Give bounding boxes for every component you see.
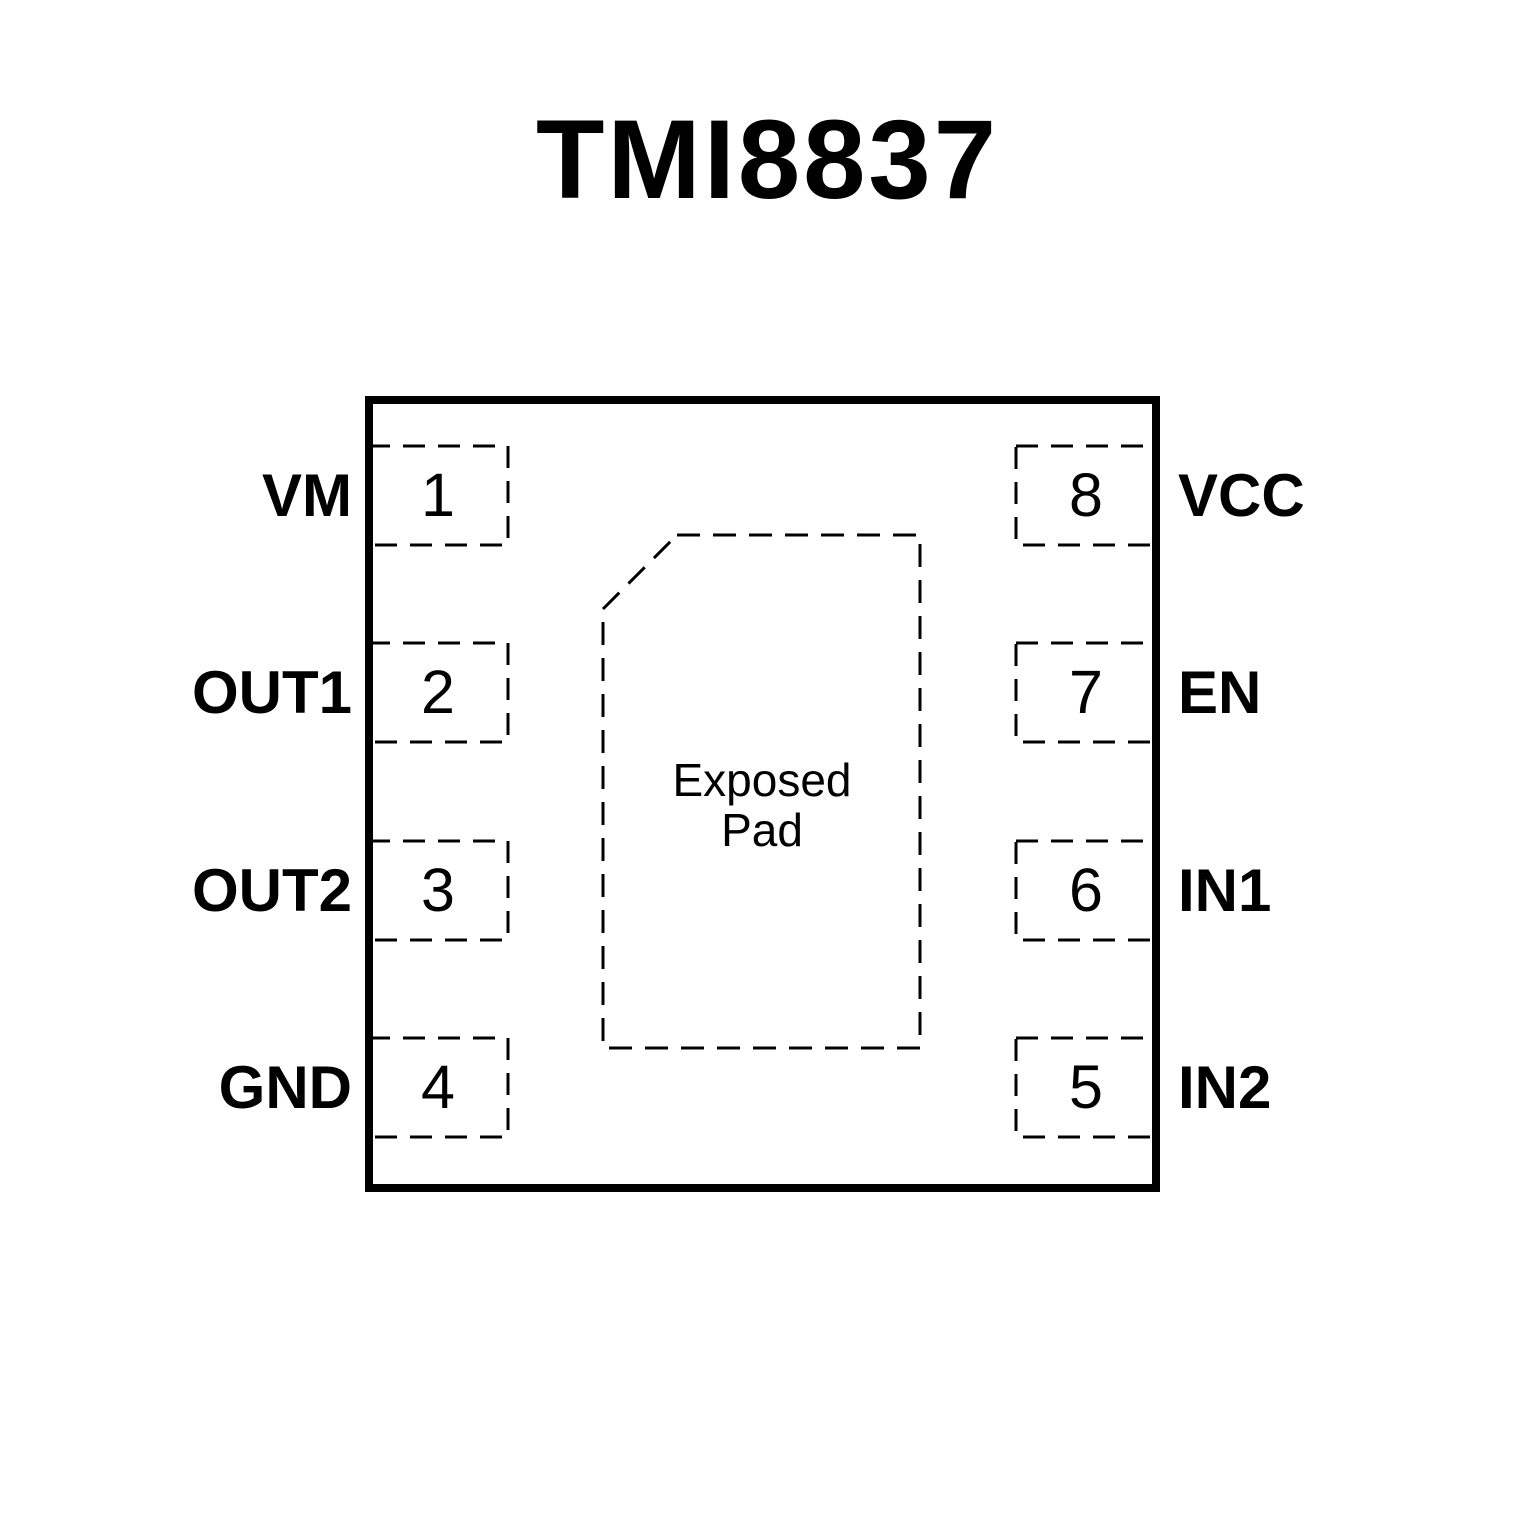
- pin-2-number: 2: [368, 643, 508, 742]
- pin-6-name-label: IN1: [1178, 841, 1508, 940]
- pin-5-number: 5: [1016, 1038, 1156, 1137]
- pin-5-name-label: IN2: [1178, 1038, 1508, 1137]
- exposed-pad-label: Exposed Pad: [603, 755, 921, 855]
- pin-1-number: 1: [368, 446, 508, 545]
- pin-4-name-label: GND: [40, 1038, 352, 1137]
- pin-3-number: 3: [368, 841, 508, 940]
- pin-6-number: 6: [1016, 841, 1156, 940]
- exposed-pad-label-line2: Pad: [603, 805, 921, 855]
- pinout-diagram: TMI8837 1 2 3 4 8 7 6 5 VM OUT1 OUT2 GND…: [0, 0, 1535, 1535]
- pin-2-name-label: OUT1: [40, 643, 352, 742]
- pin-3-name-label: OUT2: [40, 841, 352, 940]
- pin-8-name-label: VCC: [1178, 446, 1508, 545]
- pin-4-number: 4: [368, 1038, 508, 1137]
- pin-7-name-label: EN: [1178, 643, 1508, 742]
- pin-8-number: 8: [1016, 446, 1156, 545]
- exposed-pad-label-line1: Exposed: [603, 755, 921, 805]
- pin-7-number: 7: [1016, 643, 1156, 742]
- pin-1-name-label: VM: [40, 446, 352, 545]
